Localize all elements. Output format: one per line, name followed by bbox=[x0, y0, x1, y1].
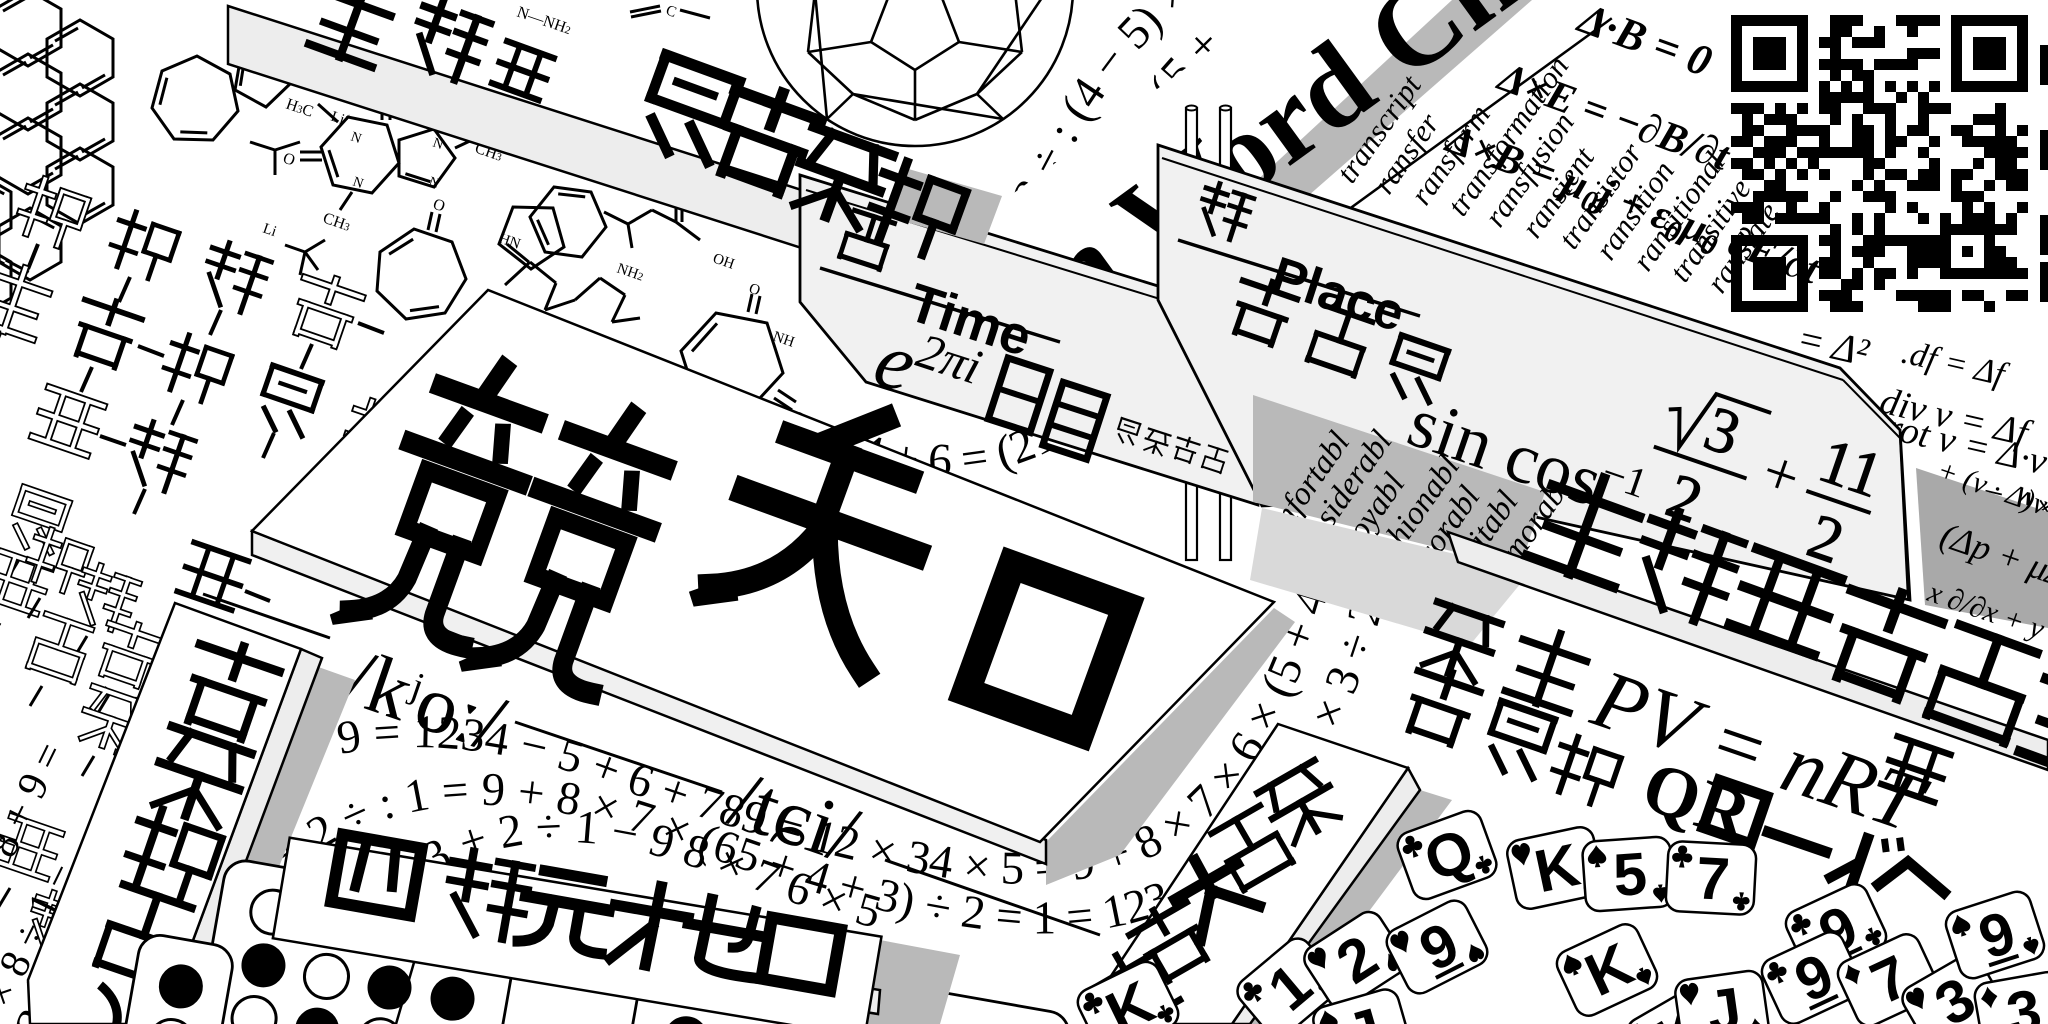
svg-text:7: 7 bbox=[1695, 844, 1732, 913]
svg-text:5: 5 bbox=[1611, 840, 1649, 909]
